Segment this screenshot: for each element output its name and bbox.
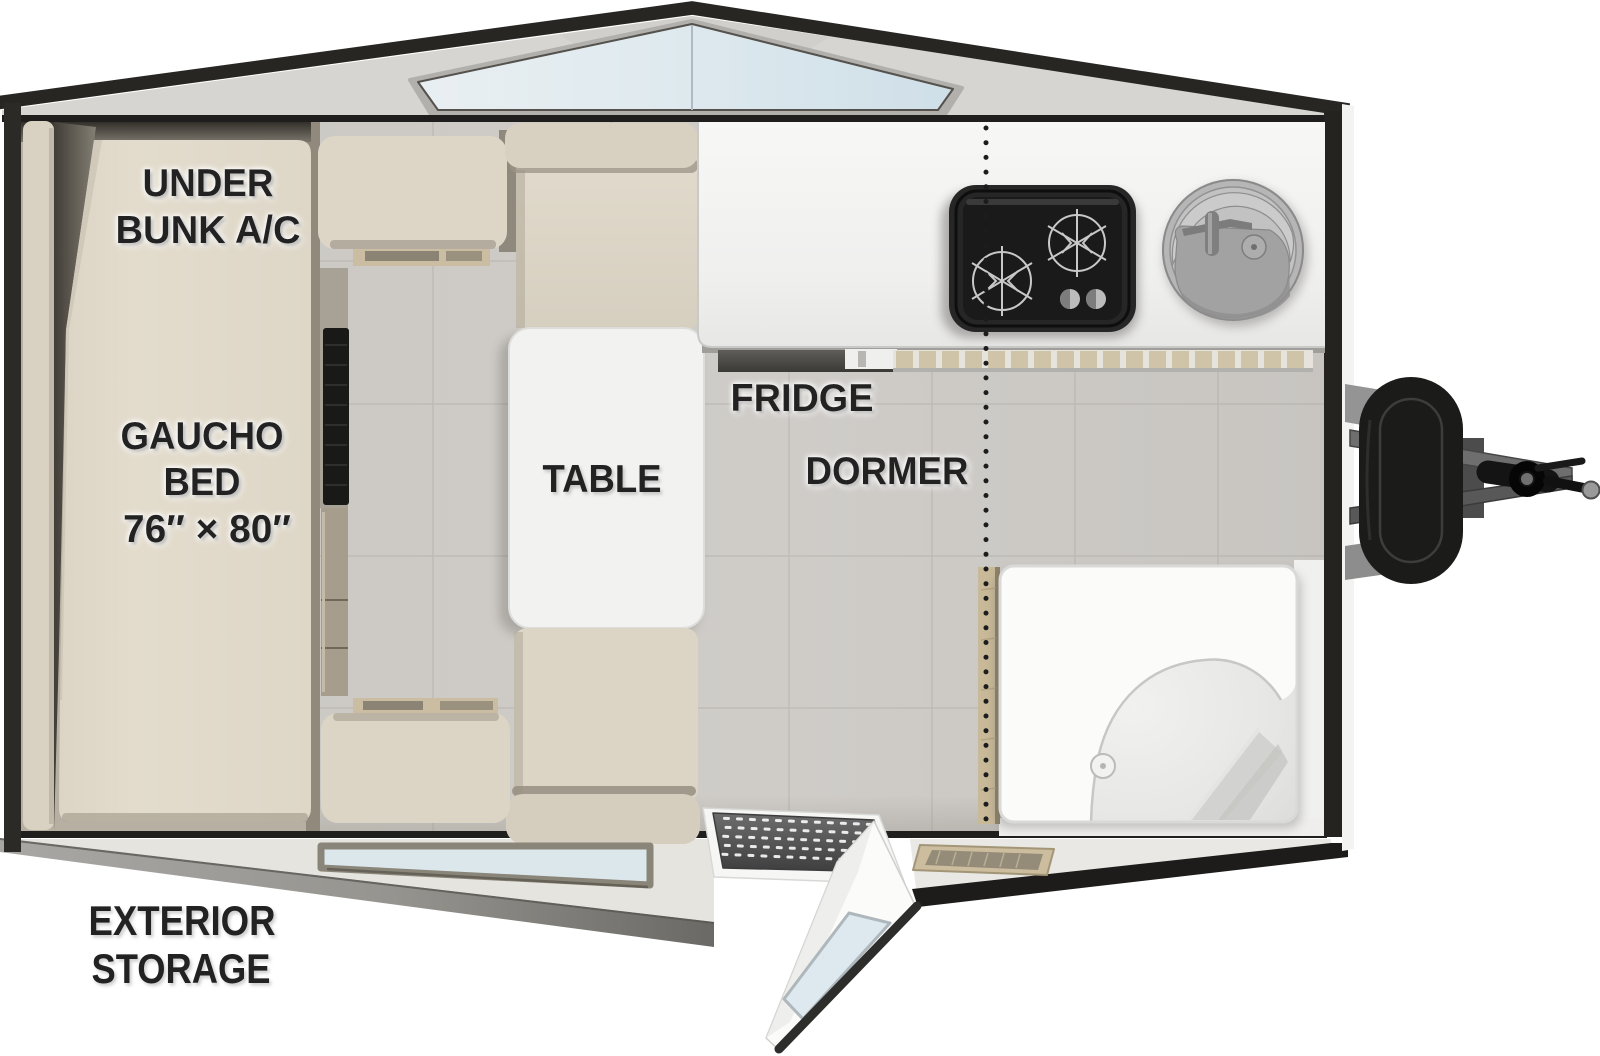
svg-text:BED: BED [164,461,241,504]
svg-text:GAUCHO: GAUCHO [121,415,284,458]
svg-text:TABLE: TABLE [543,458,662,501]
svg-text:76″ × 80″: 76″ × 80″ [123,508,291,551]
svg-text:DORMER: DORMER [806,450,969,493]
svg-text:EXTERIOR: EXTERIOR [89,897,276,944]
svg-text:FRIDGE: FRIDGE [731,377,874,420]
svg-text:BUNK A/C: BUNK A/C [116,209,301,252]
svg-text:STORAGE: STORAGE [92,945,271,992]
svg-text:UNDER: UNDER [143,162,274,205]
